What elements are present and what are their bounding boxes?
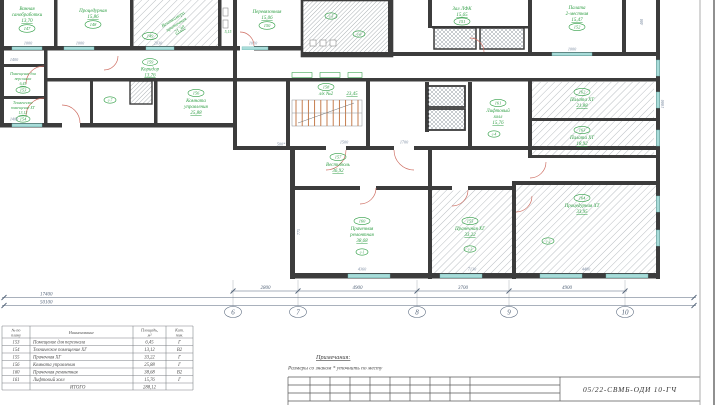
dim-text: 775 bbox=[296, 229, 301, 235]
room-name: Палата ХТ bbox=[569, 98, 595, 103]
service-shaft bbox=[434, 28, 476, 49]
section-mark: с-3 bbox=[468, 247, 473, 251]
room-name: Процедурная bbox=[78, 9, 107, 14]
room-label-153: Помещение для персонала 6,45 153 bbox=[9, 72, 36, 93]
table-header: плану bbox=[11, 333, 21, 338]
table-row: 155 Прачечная ХГ 33,22 Г bbox=[12, 355, 181, 360]
room-label-148: Процедурная 15,86 148 bbox=[78, 9, 107, 28]
room-area: 13,76 bbox=[144, 74, 156, 79]
sheet-frame bbox=[700, 0, 714, 405]
room-label-152: Палата 2-местная 15,47 152 bbox=[566, 6, 589, 31]
cell-area: 33,22 bbox=[144, 355, 155, 360]
room-name: Палата ХТ bbox=[569, 136, 595, 141]
cell-name: Помещение для персонала bbox=[32, 340, 86, 345]
room-area: 38,68 bbox=[356, 239, 368, 244]
room-number: 160 bbox=[359, 219, 366, 224]
room-name: 2-местная bbox=[566, 12, 589, 17]
room-name: санобработки bbox=[12, 13, 43, 18]
cell-name: Лифтовый холл bbox=[32, 377, 65, 383]
room-number: 162 bbox=[579, 90, 586, 95]
fixture bbox=[330, 40, 336, 46]
room-number: 150 bbox=[264, 23, 271, 28]
room-area: 15,06 bbox=[261, 16, 273, 21]
cell-area: 13,12 bbox=[144, 348, 155, 353]
dim-text: 1400 bbox=[10, 117, 19, 122]
cell-total-label: ИТОГО bbox=[69, 385, 86, 390]
cell-cat: В2 bbox=[177, 348, 183, 353]
dim-text: 1500 bbox=[340, 140, 349, 145]
room-number: 148 bbox=[90, 22, 97, 27]
hatch-duct bbox=[130, 81, 152, 104]
door-arc bbox=[62, 105, 80, 123]
room-name: Прачечная ХГ bbox=[454, 227, 485, 232]
notes-body: Размеры со знаком * уточнить по месту bbox=[287, 366, 383, 372]
table-header: Наименование bbox=[68, 330, 94, 335]
fixture bbox=[320, 40, 326, 46]
axis-dim: 4900 bbox=[353, 286, 364, 291]
cell-area: 25,88 bbox=[144, 363, 155, 368]
room-name: помещение ХГ bbox=[11, 106, 36, 110]
cell-number: 156 bbox=[12, 363, 20, 368]
room-name: управления bbox=[183, 105, 208, 110]
room-name: холл bbox=[493, 115, 503, 120]
cell-number: 160 bbox=[12, 370, 20, 375]
cell-number: 154 bbox=[12, 348, 20, 353]
fixture bbox=[223, 8, 228, 16]
room-number: 164 bbox=[579, 196, 586, 201]
staircase bbox=[292, 100, 362, 126]
room-label-147: Ванная санобработки 13,70 147 bbox=[12, 7, 43, 32]
room-name: персонала bbox=[15, 77, 32, 81]
door-arc bbox=[104, 56, 118, 70]
cell-name: Прачечная ремонтная bbox=[32, 370, 78, 375]
section-mark: с-7 bbox=[108, 98, 113, 102]
axis-dimension-chain: 2800 4900 3700 4900 6 7 8 9 10 bbox=[225, 280, 634, 318]
dim-text: 1000 bbox=[24, 41, 33, 46]
room-area: 25,88 bbox=[190, 111, 202, 116]
axis-number: 8 bbox=[415, 308, 419, 316]
room-label-156: 156 Комната управления 25,88 bbox=[183, 89, 208, 116]
section-mark: с-6 bbox=[357, 32, 362, 36]
section-mark: с-2 bbox=[546, 239, 551, 243]
door-arc bbox=[394, 150, 414, 170]
room-number: 152 bbox=[574, 25, 581, 30]
axis-number: 6 bbox=[231, 308, 235, 316]
room-number: 159 bbox=[147, 60, 154, 65]
room-label-corridor: 159 Коридор 13,76 bbox=[140, 59, 160, 79]
fixture bbox=[310, 40, 316, 46]
dim-text: 1000 bbox=[76, 41, 85, 46]
room-number: 149 bbox=[147, 34, 154, 39]
room-label-stair: 158 л/к №2 23,45 bbox=[318, 83, 358, 97]
notes: Примечания: Размеры со знаком * уточнить… bbox=[287, 354, 383, 372]
table-row: 160 Прачечная ремонтная 38,68 В2 bbox=[12, 370, 182, 375]
cell-area: 15,76 bbox=[144, 378, 155, 383]
cell-cat: Г bbox=[177, 340, 181, 345]
service-shaft bbox=[480, 28, 524, 49]
table-row-total: ИТОГО 288,12 bbox=[69, 385, 157, 390]
room-name: Коридор bbox=[140, 68, 160, 73]
small-room-area: 5,15 bbox=[225, 30, 232, 35]
room-label-160: 160 Прачечная ремонтная 38,68 bbox=[349, 217, 374, 244]
room-label-150: Перевязочная 15,06 150 bbox=[252, 10, 283, 29]
room-name: л/к №2 bbox=[318, 91, 334, 97]
overall-dim: 50100 bbox=[40, 301, 53, 306]
room-number: 156 bbox=[193, 91, 200, 96]
room-area: 21,88 bbox=[576, 104, 588, 109]
axis-number: 9 bbox=[507, 308, 511, 316]
dim-text: 4480 bbox=[582, 267, 591, 272]
table-row: 154 Техническое помещение ХГ 13,12 В2 bbox=[12, 348, 182, 353]
room-number: 147 bbox=[24, 26, 31, 31]
room-number: 151 bbox=[459, 19, 466, 24]
cell-name: Прачечная ХГ bbox=[32, 355, 61, 360]
title-block: 05/22-СВМБ-ОДИ 10-ГЧ bbox=[288, 377, 700, 405]
room-number: 153 bbox=[20, 88, 27, 93]
room-name: Комната bbox=[185, 99, 206, 104]
notes-title: Примечания: bbox=[315, 354, 350, 361]
room-number: 157 bbox=[335, 155, 342, 160]
room-area: 15,86 bbox=[87, 15, 99, 20]
cell-cat: В2 bbox=[177, 370, 183, 375]
room-area: 33,22 bbox=[464, 233, 476, 238]
room-name: ремонтная bbox=[349, 233, 374, 238]
axis-dim: 3700 bbox=[458, 286, 469, 291]
room-label-151: Зал ЛФК 15,65 151 bbox=[452, 7, 472, 25]
axis-dim: 4900 bbox=[562, 286, 573, 291]
fixture bbox=[223, 20, 228, 28]
door-arc bbox=[530, 162, 546, 178]
room-label-vestibule: 157 Вестибюль 36,92 bbox=[326, 153, 351, 174]
cell-total-area: 288,12 bbox=[143, 385, 157, 390]
floor-plan-drawing: Ванная санобработки 13,70 147 Процедурна… bbox=[0, 0, 720, 405]
room-name: Лифтовый bbox=[485, 108, 510, 114]
dim-text: 1700 bbox=[400, 140, 409, 145]
overall-dimensions: 17400 50100 bbox=[2, 293, 697, 309]
room-area: 15,76 bbox=[492, 121, 504, 126]
cell-name: Комната управления bbox=[32, 363, 75, 368]
room-number: 155 bbox=[467, 219, 474, 224]
hatch-procedure-room bbox=[516, 185, 656, 275]
room-schedule-table: № по плану Наименование Площадь, м² Кат.… bbox=[2, 326, 193, 390]
hatch-shaft-block bbox=[302, 0, 392, 56]
room-name: Помещение для bbox=[9, 72, 36, 76]
axis-dim: 2800 bbox=[261, 286, 272, 291]
section-mark: с-4 bbox=[492, 132, 497, 136]
cell-area: 38,68 bbox=[144, 370, 155, 375]
room-name: Зал ЛФК bbox=[452, 7, 472, 12]
cell-cat: Г bbox=[177, 378, 181, 383]
room-number: 154 bbox=[20, 117, 27, 122]
room-name: Прачечная bbox=[350, 227, 374, 232]
overall-dim: 17400 bbox=[40, 293, 53, 298]
table-header: пом. bbox=[176, 333, 184, 338]
cell-number: 153 bbox=[12, 340, 20, 345]
section-mark: с-5 bbox=[329, 14, 334, 18]
room-area: 18,92 bbox=[576, 142, 588, 147]
dim-text: 4360 bbox=[358, 267, 367, 272]
room-number: 163 bbox=[579, 128, 586, 133]
table-header: м² bbox=[147, 333, 153, 338]
room-number: 161 bbox=[495, 101, 502, 106]
room-area: 15,47 bbox=[571, 18, 583, 23]
cell-cat: Г bbox=[177, 363, 181, 368]
room-name: Техническое bbox=[13, 101, 33, 105]
cell-cat: Г bbox=[177, 355, 181, 360]
room-area: 13,70 bbox=[21, 19, 33, 24]
elevator-shaft bbox=[427, 86, 465, 107]
cell-number: 161 bbox=[12, 378, 19, 383]
cell-area: 6,45 bbox=[145, 340, 154, 345]
axis-number: 10 bbox=[622, 308, 630, 316]
cell-number: 155 bbox=[12, 355, 20, 360]
room-area: 6,45 bbox=[20, 82, 27, 87]
dim-text: 7130 bbox=[468, 267, 477, 272]
document-code: 05/22-СВМБ-ОДИ 10-ГЧ bbox=[583, 385, 677, 394]
dim-text: 2030 bbox=[154, 41, 163, 46]
dim-text: 400 bbox=[639, 18, 644, 25]
room-name: Палата bbox=[567, 6, 586, 11]
dim-text: 1010 bbox=[249, 41, 258, 46]
axis-number: 7 bbox=[296, 308, 300, 316]
room-area: 15,65 bbox=[456, 13, 468, 18]
section-mark: с-1 bbox=[360, 250, 365, 254]
room-label-161: 161 Лифтовый холл 15,76 bbox=[485, 99, 510, 126]
room-number: 158 bbox=[323, 85, 330, 90]
cell-name: Техническое помещение ХГ bbox=[33, 348, 87, 353]
floor-plan-sheet: Ванная санобработки 13,70 147 Процедурна… bbox=[0, 0, 720, 405]
dim-text: 1400 bbox=[10, 57, 19, 62]
table-row: 156 Комната управления 25,88 Г bbox=[12, 363, 181, 368]
dim-text: 1000 bbox=[568, 47, 577, 52]
elevator-shaft bbox=[427, 109, 465, 130]
room-name: Процедурная ХТ bbox=[564, 204, 601, 209]
room-name: Вестибюль bbox=[326, 163, 351, 168]
room-name: Перевязочная bbox=[252, 10, 283, 15]
room-area: 36,92 bbox=[332, 169, 344, 174]
room-name: Ванная bbox=[19, 7, 35, 12]
dim-text: 500* bbox=[277, 142, 286, 147]
table-row: 153 Помещение для персонала 6,45 Г bbox=[12, 340, 181, 345]
room-area: 23,45 bbox=[346, 92, 358, 97]
table-row: 161 Лифтовый холл 15,76 Г bbox=[12, 377, 181, 383]
dim-text: 1000 bbox=[660, 99, 665, 108]
room-area: 33,95 bbox=[576, 210, 588, 215]
